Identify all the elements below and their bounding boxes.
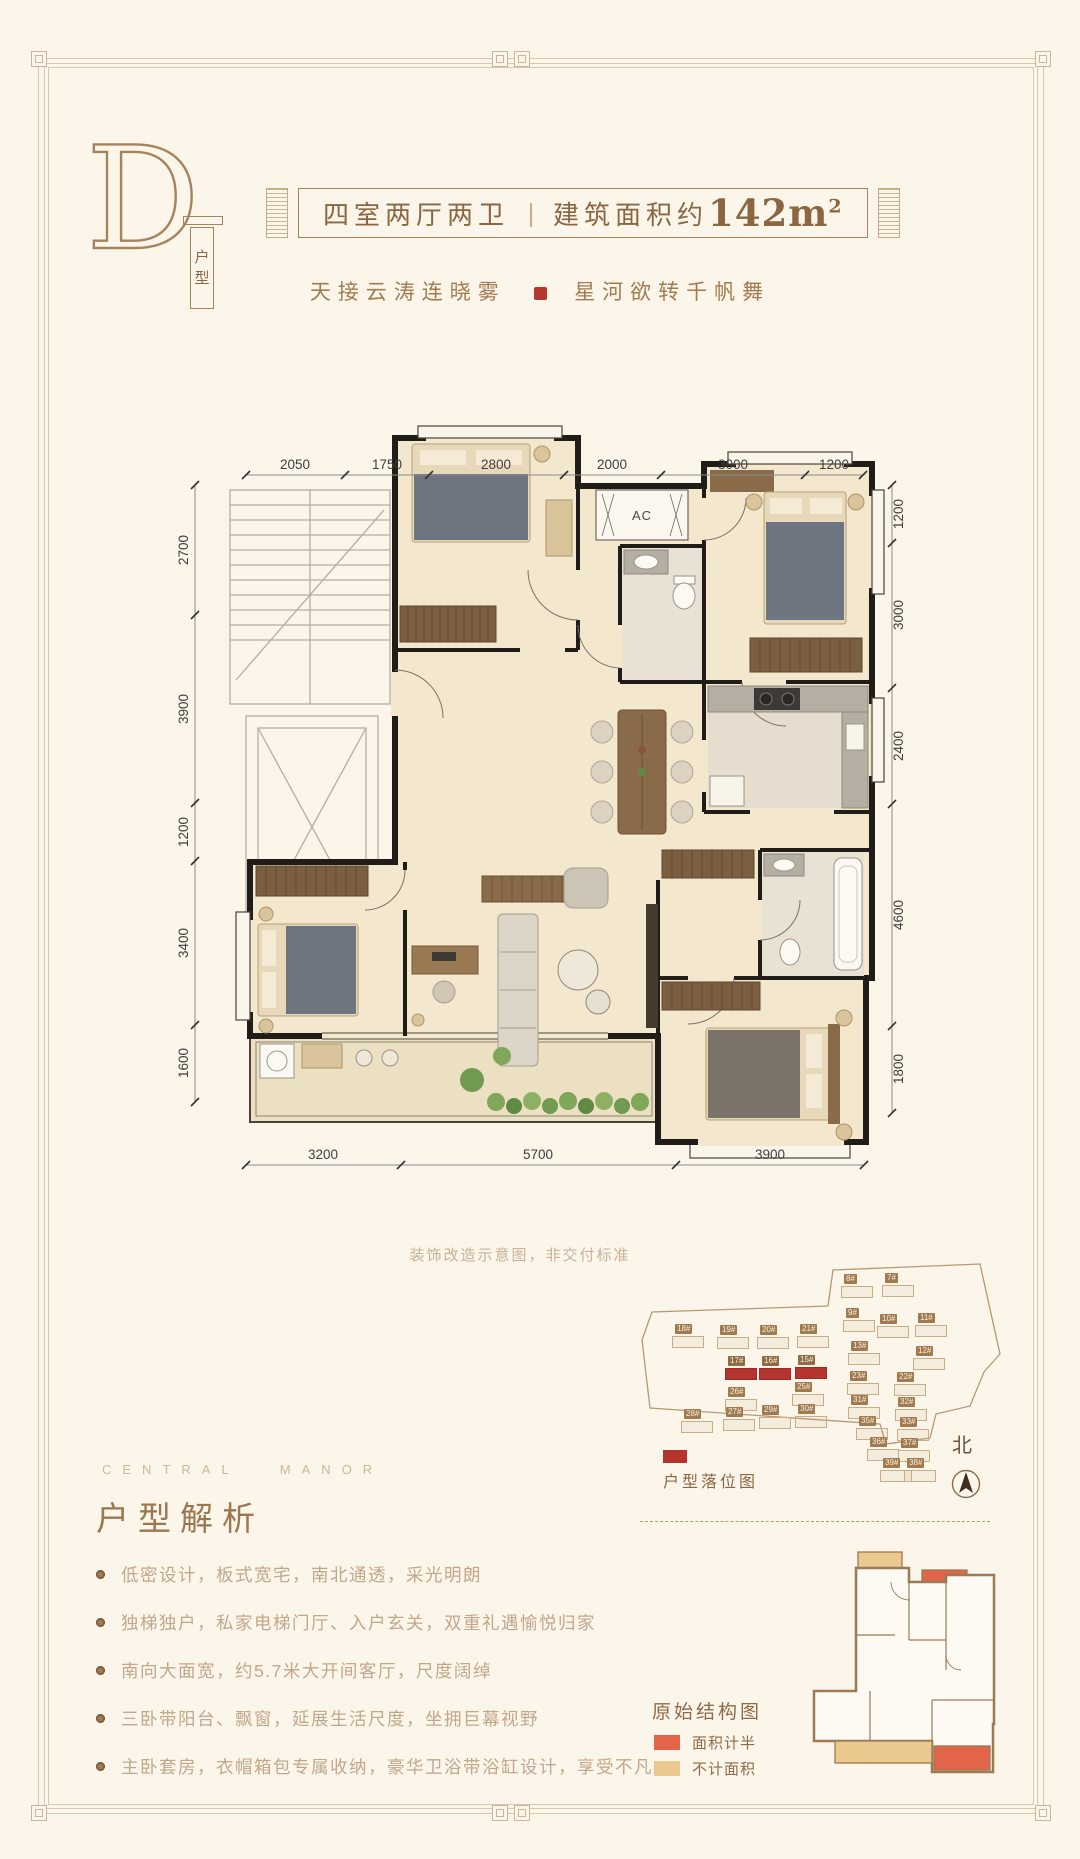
site-building-footprint xyxy=(797,1336,829,1348)
analysis-bullet: 低密设计，板式宽宅，南北通透，采光明朗 xyxy=(96,1562,916,1587)
tagline-left: 天接云涛连晓雾 xyxy=(310,280,506,304)
banner-rooms: 四室两厅两卫 xyxy=(323,195,509,232)
bullet-dot-icon xyxy=(96,1714,105,1723)
banner-seal-right-icon xyxy=(878,188,900,238)
site-building-label: 7# xyxy=(885,1273,898,1283)
banner-seal-left-icon xyxy=(266,188,288,238)
svg-text:3200: 3200 xyxy=(308,1147,338,1162)
site-building-footprint xyxy=(882,1285,914,1297)
svg-text:2700: 2700 xyxy=(176,535,191,565)
site-building-footprint xyxy=(915,1325,947,1337)
site-building-footprint xyxy=(795,1416,827,1428)
site-building-label: 29# xyxy=(762,1405,779,1415)
frame-corner-ornament xyxy=(1035,51,1051,67)
site-building-label: 27# xyxy=(726,1407,743,1417)
site-building-label: 17# xyxy=(728,1356,745,1366)
site-building-footprint xyxy=(725,1368,757,1380)
banner-divider: ｜ xyxy=(519,196,543,231)
svg-text:2000: 2000 xyxy=(597,457,627,472)
bullet-dot-icon xyxy=(96,1762,105,1771)
svg-text:1800: 1800 xyxy=(891,1054,906,1084)
svg-text:3900: 3900 xyxy=(176,694,191,724)
bullet-text: 南向大面宽，约5.7米大开间客厅，尺度阔绰 xyxy=(121,1658,492,1683)
site-building-label: 36# xyxy=(870,1437,887,1447)
site-building-footprint xyxy=(841,1286,873,1298)
svg-text:1200: 1200 xyxy=(819,457,849,472)
bullet-text: 三卧带阳台、飘窗，延展生活尺度，坐拥巨幕视野 xyxy=(121,1706,539,1731)
poster-page: { "colors": { "background": "#fbf5ea", "… xyxy=(0,0,1080,1859)
bullet-text: 独梯独户，私家电梯门厅、入户玄关，双重礼遇愉悦归家 xyxy=(121,1610,596,1635)
bullet-dot-icon xyxy=(96,1570,105,1579)
banner-area-value: 142m2 xyxy=(708,191,843,235)
stairwell xyxy=(230,490,390,704)
bedroom-south-furniture xyxy=(256,866,368,1033)
site-building-label: 33# xyxy=(900,1417,917,1427)
site-building-footprint xyxy=(759,1368,791,1380)
site-building-label: 37# xyxy=(901,1438,918,1448)
bullet-dot-icon xyxy=(96,1666,105,1675)
structure-balcony-south xyxy=(835,1741,932,1763)
structure-legend-half: 面积计半 xyxy=(654,1732,756,1753)
site-building-label: 31# xyxy=(851,1395,868,1405)
site-building-footprint xyxy=(672,1336,704,1348)
title-banner: 四室两厅两卫 ｜ 建筑面积约 142m2 xyxy=(266,188,900,238)
legend-half-swatch xyxy=(654,1735,680,1750)
site-building-label: 16# xyxy=(762,1356,779,1366)
site-building-footprint xyxy=(877,1326,909,1338)
legend-excluded-label: 不计面积 xyxy=(692,1758,756,1779)
bullet-text: 主卧套房，衣帽箱包专属收纳，豪华卫浴带浴缸设计，享受不凡 xyxy=(121,1754,653,1779)
banner-area-sup: 2 xyxy=(828,196,842,218)
site-building-label: 23# xyxy=(850,1371,867,1381)
analysis-title: 户型解析 xyxy=(96,1492,264,1540)
site-building-label: 22# xyxy=(897,1372,914,1382)
frame-corner-ornament xyxy=(1035,1805,1051,1821)
svg-text:2800: 2800 xyxy=(481,457,511,472)
site-building-footprint xyxy=(847,1383,879,1395)
scroll-bar xyxy=(183,216,223,225)
site-building-label: 30# xyxy=(798,1404,815,1414)
banner-box: 四室两厅两卫 ｜ 建筑面积约 142m2 xyxy=(298,188,868,238)
site-building-footprint xyxy=(757,1337,789,1349)
site-building-label: 15# xyxy=(798,1355,815,1365)
section-divider xyxy=(640,1521,990,1522)
site-building-footprint xyxy=(681,1421,713,1433)
svg-text:2050: 2050 xyxy=(280,457,310,472)
svg-text:1600: 1600 xyxy=(176,1048,191,1078)
frame-top-ornament xyxy=(514,51,530,67)
site-building-footprint xyxy=(904,1470,936,1482)
svg-text:5700: 5700 xyxy=(523,1147,553,1162)
analysis-bullet: 独梯独户，私家电梯门厅、入户玄关，双重礼遇愉悦归家 xyxy=(96,1610,916,1635)
frame-corner-ornament xyxy=(31,51,47,67)
frame-corner-ornament xyxy=(31,1805,47,1821)
analysis-bullet: 三卧带阳台、飘窗，延展生活尺度，坐拥巨幕视野 xyxy=(96,1706,916,1731)
svg-text:1750: 1750 xyxy=(372,457,402,472)
site-building-label: 21# xyxy=(800,1324,817,1334)
site-building-label: 35# xyxy=(859,1416,876,1426)
legend-half-label: 面积计半 xyxy=(692,1732,756,1753)
site-building-label: 25# xyxy=(795,1382,812,1392)
ac-label: AC xyxy=(632,508,652,523)
structure-balcony-north xyxy=(858,1552,902,1568)
svg-text:1200: 1200 xyxy=(176,817,191,847)
site-building-label: 19# xyxy=(720,1325,737,1335)
analysis-bullet-list: 低密设计，板式宽宅，南北通透，采光明朗 独梯独户，私家电梯门厅、入户玄关，双重礼… xyxy=(96,1562,916,1802)
site-building-footprint xyxy=(843,1320,875,1332)
site-building-label: 10# xyxy=(880,1314,897,1324)
analysis-bullet: 南向大面宽，约5.7米大开间客厅，尺度阔绰 xyxy=(96,1658,916,1683)
frame-bottom-ornament xyxy=(492,1805,508,1821)
site-legend-swatch xyxy=(663,1450,687,1463)
floor-plan-svg: AC xyxy=(150,380,930,1210)
site-building-label: 20# xyxy=(760,1325,777,1335)
frame-bottom-ornament xyxy=(514,1805,530,1821)
analysis-bullet: 主卧套房，衣帽箱包专属收纳，豪华卫浴带浴缸设计，享受不凡 xyxy=(96,1754,916,1779)
legend-excluded-swatch xyxy=(654,1761,680,1776)
svg-text:2400: 2400 xyxy=(891,731,906,761)
svg-text:3000: 3000 xyxy=(891,600,906,630)
frame-top-ornament xyxy=(492,51,508,67)
svg-text:1200: 1200 xyxy=(891,499,906,529)
structure-legend-excluded: 不计面积 xyxy=(654,1758,756,1779)
site-building-label: 26# xyxy=(728,1387,745,1397)
svg-text:3900: 3900 xyxy=(755,1147,785,1162)
structure-title: 原始结构图 xyxy=(652,1697,762,1724)
brand-eyebrow: CENTRAL MANOR xyxy=(102,1462,383,1477)
unit-type-char: 户 xyxy=(194,250,209,265)
site-building-label: 38# xyxy=(907,1458,924,1468)
site-building-label: 18# xyxy=(675,1324,692,1334)
svg-text:4600: 4600 xyxy=(891,900,906,930)
bullet-text: 低密设计，板式宽宅，南北通透，采光明朗 xyxy=(121,1562,482,1587)
site-legend-label: 户型落位图 xyxy=(663,1468,758,1492)
site-building-footprint xyxy=(759,1417,791,1429)
svg-text:3400: 3400 xyxy=(176,928,191,958)
dining-furniture xyxy=(591,710,693,834)
site-building-label: 39# xyxy=(883,1458,900,1468)
site-building-footprint xyxy=(894,1384,926,1396)
banner-area-prefix: 建筑面积约 xyxy=(553,195,708,232)
structure-half-area-south xyxy=(934,1746,990,1770)
structure-diagram-svg xyxy=(795,1540,1010,1800)
ac-closet: AC xyxy=(596,490,688,540)
site-plan: 北 8#7#9#10#11#18#19#20#21#13#12#17#16#15… xyxy=(628,1256,1020,1512)
site-building-footprint xyxy=(723,1419,755,1431)
svg-text:3000: 3000 xyxy=(718,457,748,472)
tagline-right: 星河欲转千帆舞 xyxy=(574,280,770,304)
site-building-label: 12# xyxy=(916,1346,933,1356)
site-building-label: 8# xyxy=(844,1274,857,1284)
site-building-footprint xyxy=(848,1353,880,1365)
site-building-label: 11# xyxy=(918,1313,935,1323)
site-building-footprint xyxy=(795,1367,827,1379)
site-building-label: 28# xyxy=(684,1409,701,1419)
site-building-footprint xyxy=(913,1358,945,1370)
bullet-dot-icon xyxy=(96,1618,105,1627)
site-building-label: 9# xyxy=(846,1308,859,1318)
tagline: 天接云涛连晓雾 星河欲转千帆舞 xyxy=(0,276,1080,306)
site-building-label: 32# xyxy=(898,1397,915,1407)
site-building-label: 13# xyxy=(851,1341,868,1351)
tagline-seal-icon xyxy=(534,287,547,300)
site-building-footprint xyxy=(717,1337,749,1349)
